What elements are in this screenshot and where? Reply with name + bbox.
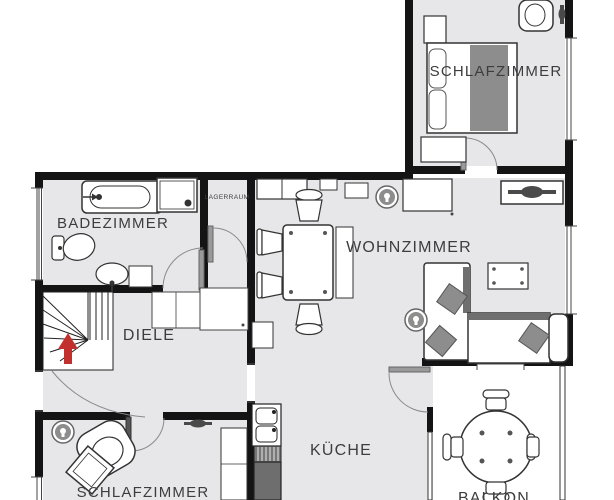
wall (497, 166, 573, 174)
wall (163, 412, 247, 420)
balcony-chair (443, 434, 463, 460)
coffee-table (488, 263, 528, 289)
pillow (429, 90, 446, 129)
shower (157, 178, 197, 212)
lamp-icon (405, 309, 427, 331)
wall (35, 280, 43, 370)
balcony-railing (560, 366, 565, 500)
wall-shelf (320, 179, 337, 190)
kueche-furniture (252, 404, 281, 500)
wall (565, 140, 573, 226)
lamp-icon (52, 421, 74, 443)
room-label-balkon: BALKON (458, 490, 530, 500)
bathtub (82, 181, 162, 213)
wall (35, 172, 413, 180)
wall (43, 412, 130, 420)
double-bed (427, 43, 517, 133)
room-label-schlafzimmer-top: SCHLAFZIMMER (430, 63, 563, 80)
stove (254, 446, 281, 462)
stairs (43, 292, 113, 370)
window (565, 38, 577, 140)
dresser (421, 137, 466, 162)
balcony-chair (527, 434, 539, 460)
balcony-table (460, 411, 532, 483)
hall-kitchen-opening (247, 363, 255, 403)
wall (427, 407, 433, 432)
wardrobe (200, 288, 248, 330)
bathroom-cabinet (129, 266, 152, 287)
wall (35, 412, 43, 477)
dining-table (283, 225, 333, 300)
wall (35, 172, 43, 188)
kitchen-sink (252, 404, 281, 446)
dining-chair (257, 229, 282, 255)
counter (254, 462, 281, 500)
cabinet (403, 179, 452, 211)
window (31, 477, 43, 500)
bench (336, 227, 353, 298)
room-label-lagerraum: LAGERRAUM (205, 194, 250, 201)
balcony-railing (428, 432, 432, 500)
entry-opening (35, 370, 43, 412)
dining-chair (257, 272, 282, 298)
side-table (252, 322, 273, 348)
wall (405, 0, 413, 178)
radiator (501, 181, 563, 204)
washbasin (519, 0, 553, 31)
wall (565, 0, 573, 38)
window (565, 226, 577, 314)
nightstand (424, 16, 446, 43)
floor-plan: BADEZIMMER LAGERRAUM SCHLAFZIMMER WOHNZI… (0, 0, 614, 500)
room-label-kueche: KÜCHE (310, 441, 372, 459)
lamp-icon (376, 186, 398, 208)
balcony-chair (483, 390, 509, 410)
floor-plan-canvas: BADEZIMMER LAGERRAUM SCHLAFZIMMER WOHNZI… (0, 0, 614, 500)
wall (405, 166, 465, 174)
dining-chair (296, 190, 322, 222)
room-label-badezimmer: BADEZIMMER (57, 215, 169, 232)
wall-shelf (345, 183, 368, 198)
window (31, 188, 43, 280)
dining-chair (296, 304, 322, 335)
room-label-diele: DIELE (123, 327, 175, 344)
room-label-schlafzimmer-bottom: SCHLAFZIMMER (77, 484, 210, 500)
room-label-wohnzimmer: WOHNZIMMER (346, 239, 472, 256)
